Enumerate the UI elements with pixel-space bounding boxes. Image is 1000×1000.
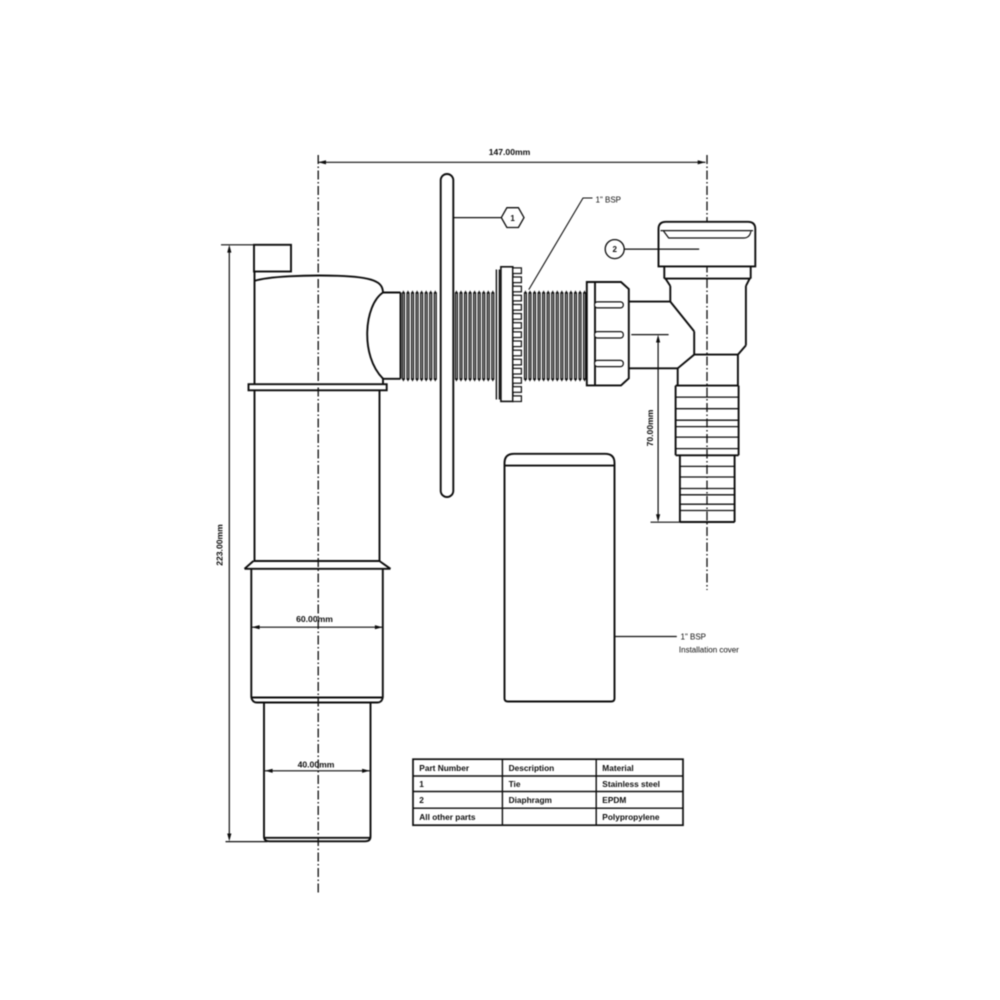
svg-text:1: 1 <box>419 779 424 789</box>
svg-text:2: 2 <box>419 795 424 805</box>
svg-text:1: 1 <box>510 214 515 223</box>
svg-text:Part Number: Part Number <box>419 763 470 773</box>
svg-text:Description: Description <box>509 763 555 773</box>
svg-text:Material: Material <box>602 763 633 773</box>
svg-text:Polypropylene: Polypropylene <box>602 812 660 822</box>
svg-text:EPDM: EPDM <box>602 795 626 805</box>
svg-text:All other parts: All other parts <box>419 812 476 822</box>
svg-text:40.00mm: 40.00mm <box>298 760 335 770</box>
svg-text:2: 2 <box>612 245 617 254</box>
svg-text:Stainless steel: Stainless steel <box>602 779 660 789</box>
svg-text:Diaphragm: Diaphragm <box>509 795 552 805</box>
svg-text:Tie: Tie <box>509 779 521 789</box>
svg-text:70.00mm: 70.00mm <box>645 409 655 446</box>
svg-text:147.00mm: 147.00mm <box>489 147 531 157</box>
svg-text:Installation cover: Installation cover <box>679 646 739 655</box>
svg-text:1" BSP: 1" BSP <box>681 633 707 642</box>
svg-text:223.00mm: 223.00mm <box>214 524 224 566</box>
svg-text:1" BSP: 1" BSP <box>596 196 622 205</box>
svg-text:60.00mm: 60.00mm <box>296 614 333 624</box>
